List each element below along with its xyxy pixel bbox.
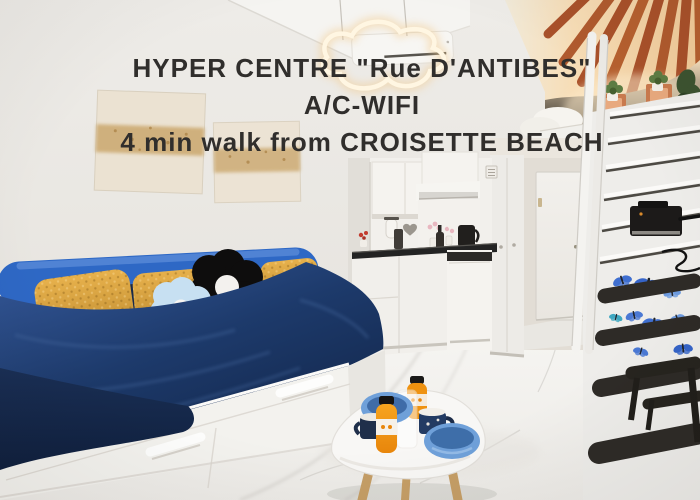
photo-vignette	[0, 0, 700, 500]
apartment-photo: HYPER CENTRE "Rue D'ANTIBES" A/C-WIFI 4 …	[0, 0, 700, 500]
scene-canvas	[0, 0, 700, 500]
